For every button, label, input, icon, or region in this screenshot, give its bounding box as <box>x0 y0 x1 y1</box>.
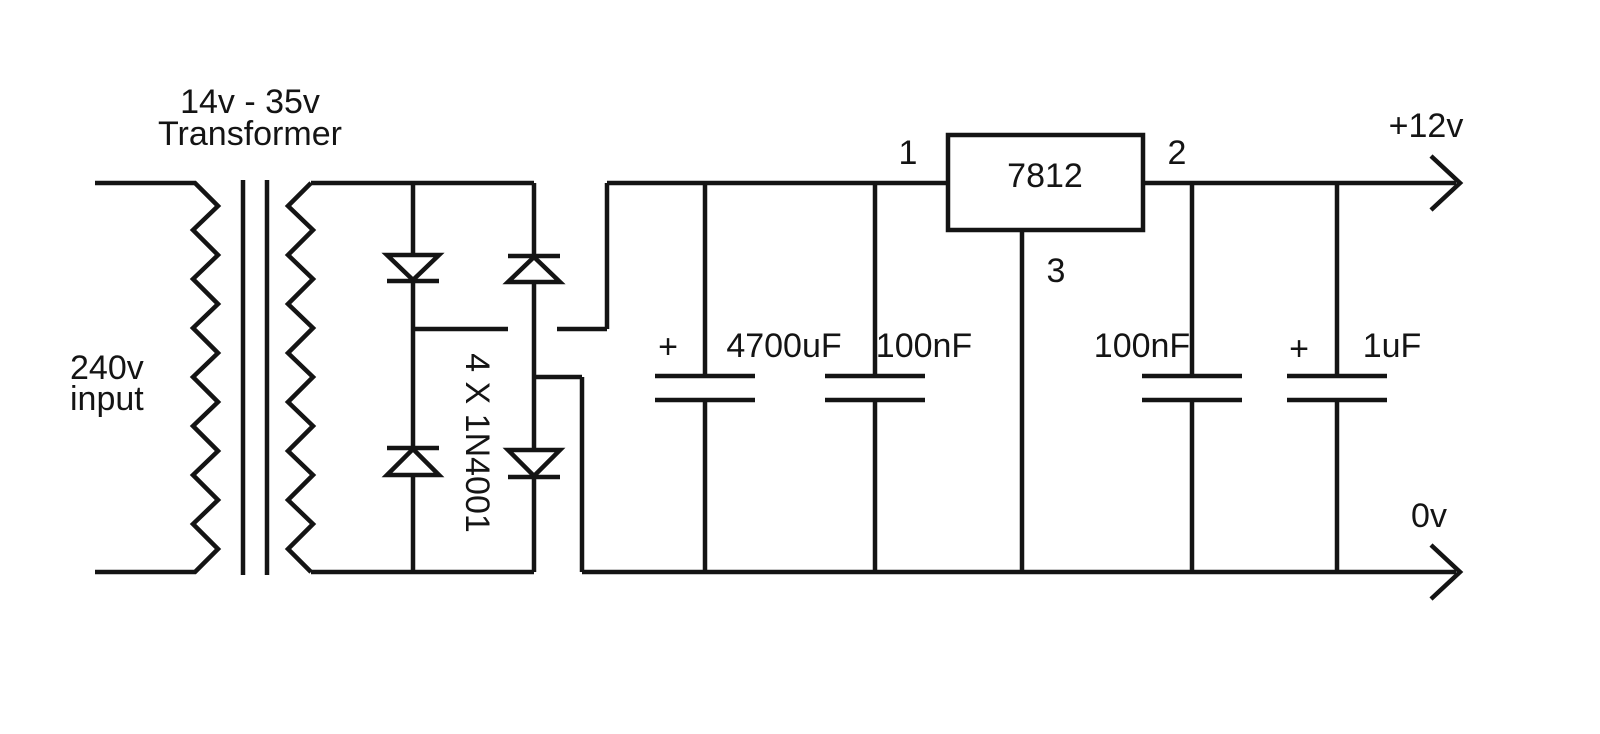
cap-1uf-polarity-label: + <box>1282 331 1316 367</box>
input-bypass-cap-100nf <box>825 183 925 572</box>
regulator-part-label: 7812 <box>965 158 1125 194</box>
positive-output-label: +12v <box>1356 108 1496 144</box>
regulator-pin1-label: 1 <box>894 135 922 171</box>
circuit-diagram: 14v - 35v Transformer 240v input 4 X 1N4… <box>0 0 1600 734</box>
smoothing-cap-4700uf <box>655 183 755 572</box>
dc-negative-link <box>534 377 582 572</box>
diode-d3 <box>387 448 439 475</box>
transformer-secondary-winding <box>288 183 313 572</box>
diode-d1 <box>387 255 439 281</box>
regulator-pin2-label: 2 <box>1163 135 1191 171</box>
transformer-title-label: Transformer <box>140 116 360 152</box>
regulator-pin3-label: 3 <box>1042 253 1070 289</box>
bridge-rectifier <box>387 183 607 572</box>
cap-1uf-value-label: 1uF <box>1342 328 1442 364</box>
input-voltage-label-line2: input <box>70 381 210 417</box>
output-bypass-cap-100nf <box>1142 183 1242 572</box>
cap-4700uf-value-label: 4700uF <box>704 328 864 364</box>
ground-output-label: 0v <box>1379 498 1479 534</box>
diode-array-label: 4 X 1N4001 <box>459 333 495 553</box>
output-cap-1uf <box>1287 183 1387 572</box>
transformer-core <box>243 180 267 575</box>
cap-100nf-input-value-label: 100nF <box>874 328 974 364</box>
cap-4700uf-polarity-label: + <box>651 329 685 365</box>
diode-d4 <box>508 450 560 477</box>
diode-d2 <box>508 256 560 282</box>
cap-100nf-output-value-label: 100nF <box>1092 328 1192 364</box>
